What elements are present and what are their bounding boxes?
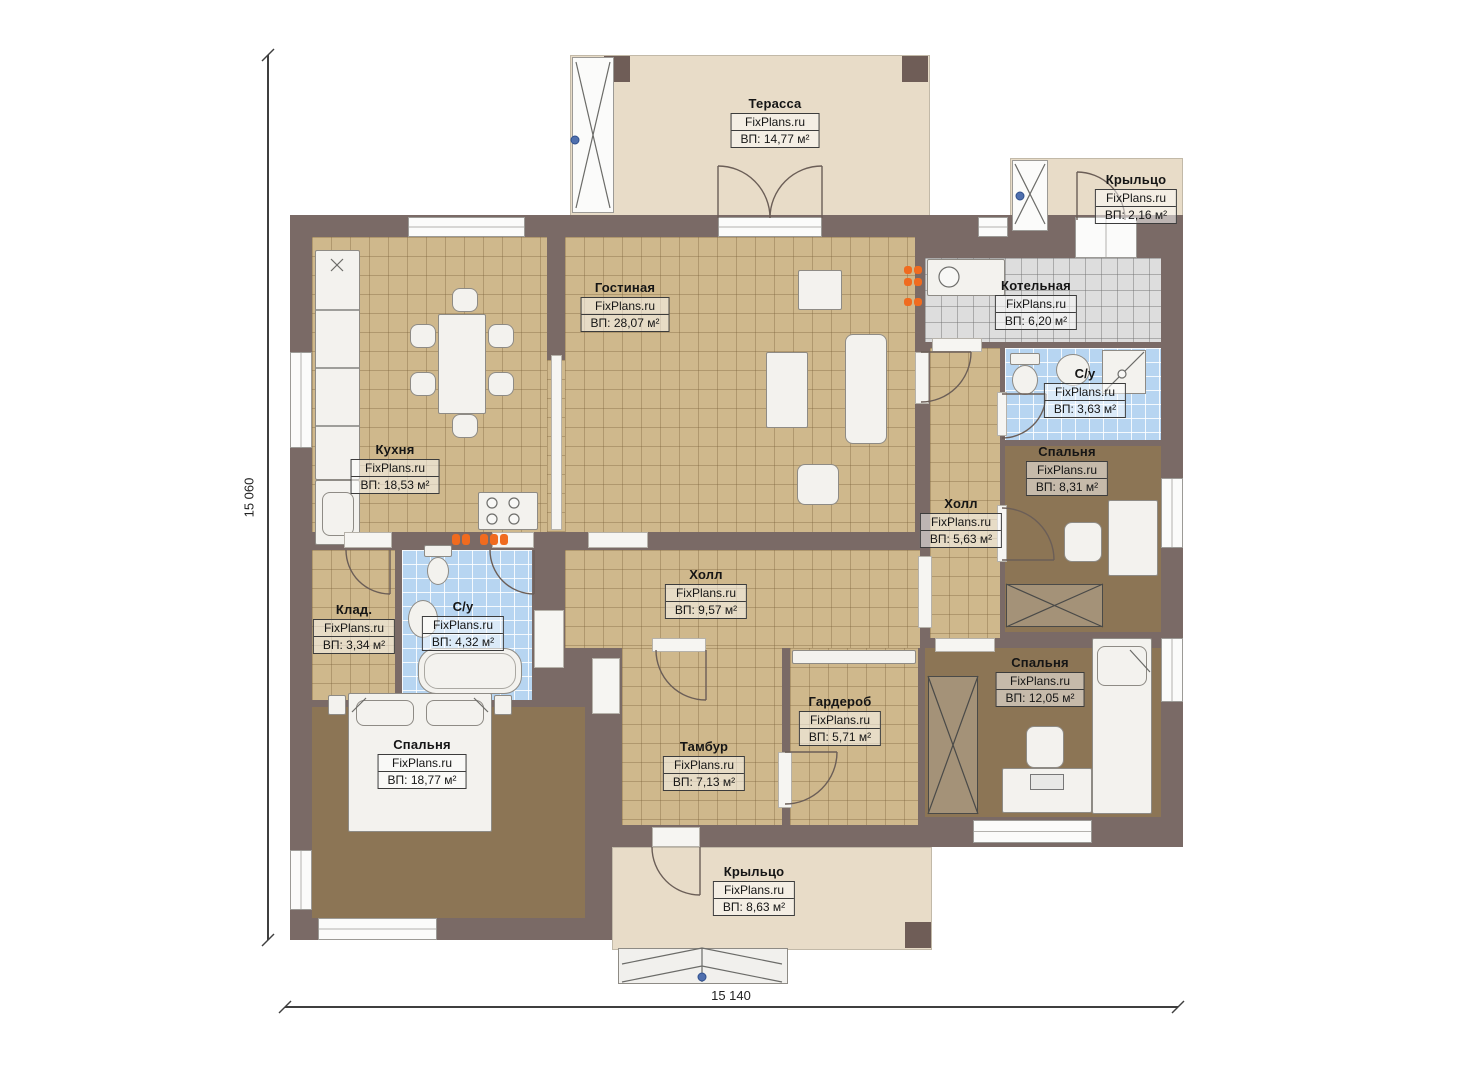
dining-chair: [452, 414, 478, 438]
toilet-tank-center: [424, 545, 452, 557]
nightstand: [494, 695, 512, 715]
brand-watermark: FixPlans.ru: [1096, 190, 1176, 207]
dining-chair: [452, 288, 478, 312]
room-info-box: FixPlans.ru ВП: 6,20 м²: [995, 295, 1077, 330]
dining-table: [438, 314, 486, 414]
brand-watermark: FixPlans.ru: [352, 460, 439, 477]
brand-watermark: FixPlans.ru: [1045, 384, 1125, 401]
window-top-small: [978, 217, 1008, 237]
room-info-box: FixPlans.ru ВП: 7,13 м²: [663, 756, 745, 791]
radiator-dot: [904, 298, 912, 306]
porch-steps: [618, 948, 788, 984]
room-info-box: FixPlans.ru ВП: 18,77 м²: [378, 754, 467, 789]
room-name: Крыльцо: [1095, 172, 1177, 187]
pillow: [426, 700, 484, 726]
brand-watermark: FixPlans.ru: [714, 882, 794, 899]
radiator-dot: [490, 534, 498, 545]
room-info-box: FixPlans.ru ВП: 3,63 м²: [1044, 383, 1126, 418]
room-name: Клад.: [313, 602, 395, 617]
room-name: Тамбур: [663, 739, 745, 754]
dining-chair: [410, 372, 436, 396]
bedroom-left-door-b: [592, 658, 620, 714]
brand-watermark: FixPlans.ru: [1027, 462, 1107, 479]
bathroom-center-door-opening: [492, 532, 534, 548]
dimension-label-vertical: 15 060: [242, 468, 257, 528]
coffee-table: [766, 352, 808, 428]
boiler-hall-opening: [932, 338, 982, 352]
room-area: ВП: 8,63 м²: [714, 899, 794, 915]
pillow: [356, 700, 414, 726]
room-area: ВП: 2,16 м²: [1096, 207, 1176, 223]
room-area: ВП: 18,53 м²: [352, 477, 439, 493]
room-label-bedroom-left: Спальня FixPlans.ru ВП: 18,77 м²: [378, 737, 467, 789]
living-hall-opening: [588, 532, 648, 548]
room-info-box: FixPlans.ru ВП: 28,07 м²: [581, 297, 670, 332]
wardrobe-bedroom-bottom-right: [928, 676, 978, 814]
room-info-box: FixPlans.ru ВП: 5,71 м²: [799, 711, 881, 746]
room-name: Котельная: [995, 278, 1077, 293]
bathtub-inner: [424, 653, 516, 689]
desk-bedroom-right: [1108, 500, 1158, 576]
room-name: Спальня: [378, 737, 467, 752]
brand-watermark: FixPlans.ru: [997, 673, 1084, 690]
floor-plan: 15 060 15 140: [0, 0, 1474, 1080]
bedroom-right-window: [1161, 478, 1183, 548]
terrace-post-right: [902, 56, 928, 82]
brand-watermark: FixPlans.ru: [996, 296, 1076, 313]
toilet-tank-right: [1010, 353, 1040, 365]
brand-watermark: FixPlans.ru: [582, 298, 669, 315]
boiler-unit: [927, 259, 1005, 296]
room-label-terrace: Терасса FixPlans.ru ВП: 14,77 м²: [731, 96, 820, 148]
room-area: ВП: 28,07 м²: [582, 315, 669, 331]
tv-stand: [798, 270, 842, 310]
room-label-porch-top: Крыльцо FixPlans.ru ВП: 2,16 м²: [1095, 172, 1177, 224]
room-info-box: FixPlans.ru ВП: 14,77 м²: [731, 113, 820, 148]
radiator-dot: [914, 266, 922, 274]
brand-watermark: FixPlans.ru: [379, 755, 466, 772]
room-label-bedroom-bottom-right: Спальня FixPlans.ru ВП: 12,05 м²: [996, 655, 1085, 707]
room-info-box: FixPlans.ru ВП: 4,32 м²: [422, 616, 504, 651]
room-label-hall-center: Холл FixPlans.ru ВП: 9,57 м²: [665, 567, 747, 619]
room-info-box: FixPlans.ru ВП: 5,63 м²: [920, 513, 1002, 548]
room-name: Кухня: [351, 442, 440, 457]
radiator-dot: [480, 534, 488, 545]
room-label-bedroom-right: Спальня FixPlans.ru ВП: 8,31 м²: [1026, 444, 1108, 496]
radiator-dot: [914, 298, 922, 306]
room-area: ВП: 4,32 м²: [423, 634, 503, 650]
room-info-box: FixPlans.ru ВП: 18,53 м²: [351, 459, 440, 494]
room-area: ВП: 3,34 м²: [314, 637, 394, 653]
radiator-dot: [904, 266, 912, 274]
room-label-hall-right: Холл FixPlans.ru ВП: 5,63 м²: [920, 496, 1002, 548]
room-area: ВП: 8,31 м²: [1027, 479, 1107, 495]
hall-connection-opening: [918, 556, 932, 628]
porch-bottom-post: [905, 922, 931, 948]
room-area: ВП: 5,63 м²: [921, 531, 1001, 547]
room-area: ВП: 5,71 м²: [800, 729, 880, 745]
room-name: Терасса: [731, 96, 820, 111]
room-info-box: FixPlans.ru ВП: 8,31 м²: [1026, 461, 1108, 496]
room-info-box: FixPlans.ru ВП: 9,57 м²: [665, 584, 747, 619]
nightstand: [328, 695, 346, 715]
storage-door-opening: [344, 532, 392, 548]
armchair: [797, 464, 839, 505]
living-hall-right-door: [915, 352, 929, 404]
bedroom-bottom-right-door-opening: [935, 638, 995, 652]
room-label-living-room: Гостиная FixPlans.ru ВП: 28,07 м²: [581, 280, 670, 332]
dining-chair: [410, 324, 436, 348]
brand-watermark: FixPlans.ru: [314, 620, 394, 637]
bedroom-bottom-right-window-bottom: [973, 820, 1092, 843]
sofa: [845, 334, 887, 444]
wardrobe-room-door: [778, 752, 792, 808]
terrace-door-threshold: [718, 217, 822, 237]
bathroom-right-door: [997, 392, 1007, 436]
room-area: ВП: 9,57 м²: [666, 602, 746, 618]
room-name: Спальня: [1026, 444, 1108, 459]
wardrobe-shelf: [792, 650, 916, 664]
vestibule-floor: [622, 648, 782, 825]
bedroom-left-door-a: [534, 610, 564, 668]
room-area: ВП: 12,05 м²: [997, 690, 1084, 706]
kitchen-sink: [322, 492, 354, 536]
radiator-dot: [904, 278, 912, 286]
room-area: ВП: 7,13 м²: [664, 774, 744, 790]
dimension-label-horizontal: 15 140: [686, 988, 776, 1003]
brand-watermark: FixPlans.ru: [921, 514, 1001, 531]
room-label-bathroom-right: С/у FixPlans.ru ВП: 3,63 м²: [1044, 366, 1126, 418]
vestibule-door-opening: [652, 638, 706, 652]
kitchen-living-pocket-door: [551, 355, 562, 530]
room-info-box: FixPlans.ru ВП: 3,34 м²: [313, 619, 395, 654]
room-info-box: FixPlans.ru ВП: 2,16 м²: [1095, 189, 1177, 224]
room-name: С/у: [1044, 366, 1126, 381]
bedroom-left-window-bottom: [318, 918, 437, 940]
room-name: Холл: [665, 567, 747, 582]
room-label-porch-bottom: Крыльцо FixPlans.ru ВП: 8,63 м²: [713, 864, 795, 916]
room-area: ВП: 3,63 м²: [1045, 401, 1125, 417]
room-label-boiler-room: Котельная FixPlans.ru ВП: 6,20 м²: [995, 278, 1077, 330]
brand-watermark: FixPlans.ru: [423, 617, 503, 634]
room-area: ВП: 6,20 м²: [996, 313, 1076, 329]
room-name: Крыльцо: [713, 864, 795, 879]
chair-bedroom-right: [1064, 522, 1102, 562]
room-label-bathroom-center: С/у FixPlans.ru ВП: 4,32 м²: [422, 599, 504, 651]
dimension-line-vertical: [267, 55, 269, 940]
room-label-vestibule: Тамбур FixPlans.ru ВП: 7,13 м²: [663, 739, 745, 791]
wardrobe-bedroom-right: [1006, 584, 1103, 627]
bedroom-bottom-right-window-side: [1161, 638, 1183, 702]
entrance-door: [652, 827, 700, 847]
terrace-side-window: [572, 57, 614, 213]
brand-watermark: FixPlans.ru: [666, 585, 746, 602]
brand-watermark: FixPlans.ru: [664, 757, 744, 774]
radiator-dot: [452, 534, 460, 545]
dining-chair: [488, 372, 514, 396]
room-info-box: FixPlans.ru ВП: 12,05 м²: [996, 672, 1085, 707]
laptop: [1030, 774, 1064, 790]
bedroom-left-window-side: [290, 850, 312, 910]
room-area: ВП: 14,77 м²: [732, 131, 819, 147]
brand-watermark: FixPlans.ru: [800, 712, 880, 729]
radiator-dot: [500, 534, 508, 545]
room-name: Гостиная: [581, 280, 670, 295]
kitchen-window-top: [408, 217, 525, 237]
dimension-line-horizontal: [285, 1006, 1178, 1008]
radiator-dot: [462, 534, 470, 545]
room-name: Спальня: [996, 655, 1085, 670]
room-label-storage: Клад. FixPlans.ru ВП: 3,34 м²: [313, 602, 395, 654]
room-name: Гардероб: [799, 694, 881, 709]
hall-right-floor: [930, 348, 1000, 638]
toilet-right: [1012, 365, 1038, 395]
toilet-center: [427, 557, 449, 585]
pillow: [1097, 646, 1147, 686]
brand-watermark: FixPlans.ru: [732, 114, 819, 131]
room-name: Холл: [920, 496, 1002, 511]
chair-bedroom-bottom-right: [1026, 726, 1064, 768]
room-label-kitchen: Кухня FixPlans.ru ВП: 18,53 м²: [351, 442, 440, 494]
porch-top-stairs: [1012, 160, 1048, 231]
dining-chair: [488, 324, 514, 348]
kitchen-window-left: [290, 352, 312, 448]
room-label-wardrobe-room: Гардероб FixPlans.ru ВП: 5,71 м²: [799, 694, 881, 746]
room-info-box: FixPlans.ru ВП: 8,63 м²: [713, 881, 795, 916]
room-name: С/у: [422, 599, 504, 614]
stove: [478, 492, 538, 530]
room-area: ВП: 18,77 м²: [379, 772, 466, 788]
radiator-dot: [914, 278, 922, 286]
